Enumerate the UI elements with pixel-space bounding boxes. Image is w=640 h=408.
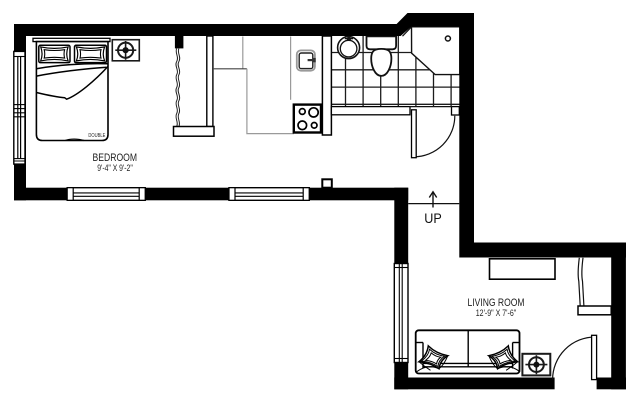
svg-text:DOUBLE: DOUBLE (88, 133, 105, 139)
svg-text:9'-4" X 9'-2": 9'-4" X 9'-2" (97, 163, 133, 173)
svg-text:UP: UP (424, 211, 442, 226)
svg-text:12'-9" X 7'-6": 12'-9" X 7'-6" (476, 308, 517, 318)
